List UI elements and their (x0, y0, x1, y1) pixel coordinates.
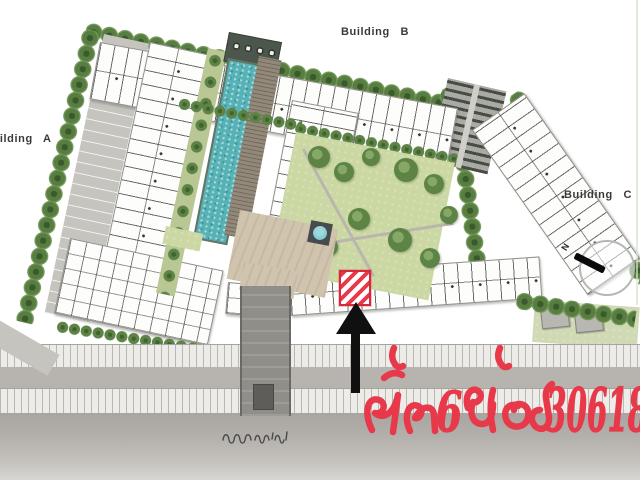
building-c-label: Building C (564, 189, 632, 201)
room-number: 30618 (546, 376, 640, 436)
fountain-water (312, 225, 328, 241)
scan-artifact-line (636, 0, 638, 305)
location-arrow-icon (336, 302, 376, 334)
annotation-strokes: 6 30618 (356, 340, 640, 436)
garden-tree (308, 146, 330, 168)
garden-tree (388, 228, 412, 252)
handwritten-annotation: ชั้น6 ห้อง 30618 6 30618 (356, 340, 640, 436)
garden-tree (334, 162, 354, 182)
highlighted-unit-marker (339, 270, 371, 306)
garden-tree (424, 174, 444, 194)
garden-tree (440, 206, 458, 224)
thai-mark-mai-tho (392, 348, 403, 367)
fountain (307, 220, 333, 246)
building-a-label: Building A (0, 133, 52, 145)
garden-tree (394, 158, 418, 182)
compass-icon (579, 240, 635, 296)
thai-letter-o-ang (505, 404, 528, 427)
guard-booth (253, 384, 274, 410)
garden-tree (362, 148, 380, 166)
thai-mark-mai-tho-2 (498, 348, 509, 367)
thai-letter-ho-hip (467, 390, 493, 430)
garden-tree (420, 248, 440, 268)
thai-letter-no-nu (407, 405, 435, 431)
building-b-label: Building B (341, 26, 409, 38)
road-label-scribble (220, 429, 296, 445)
thai-word-chan (367, 395, 398, 432)
road-label: ถนนราชพฤกษ์ (220, 429, 296, 445)
thai-mark-mai-han-akat (384, 373, 402, 378)
site-plan-screenshot: { "page": { "background": "#ffffff" }, "… (0, 0, 640, 480)
garden-tree (348, 208, 370, 230)
floor-number: 6 (436, 381, 462, 436)
